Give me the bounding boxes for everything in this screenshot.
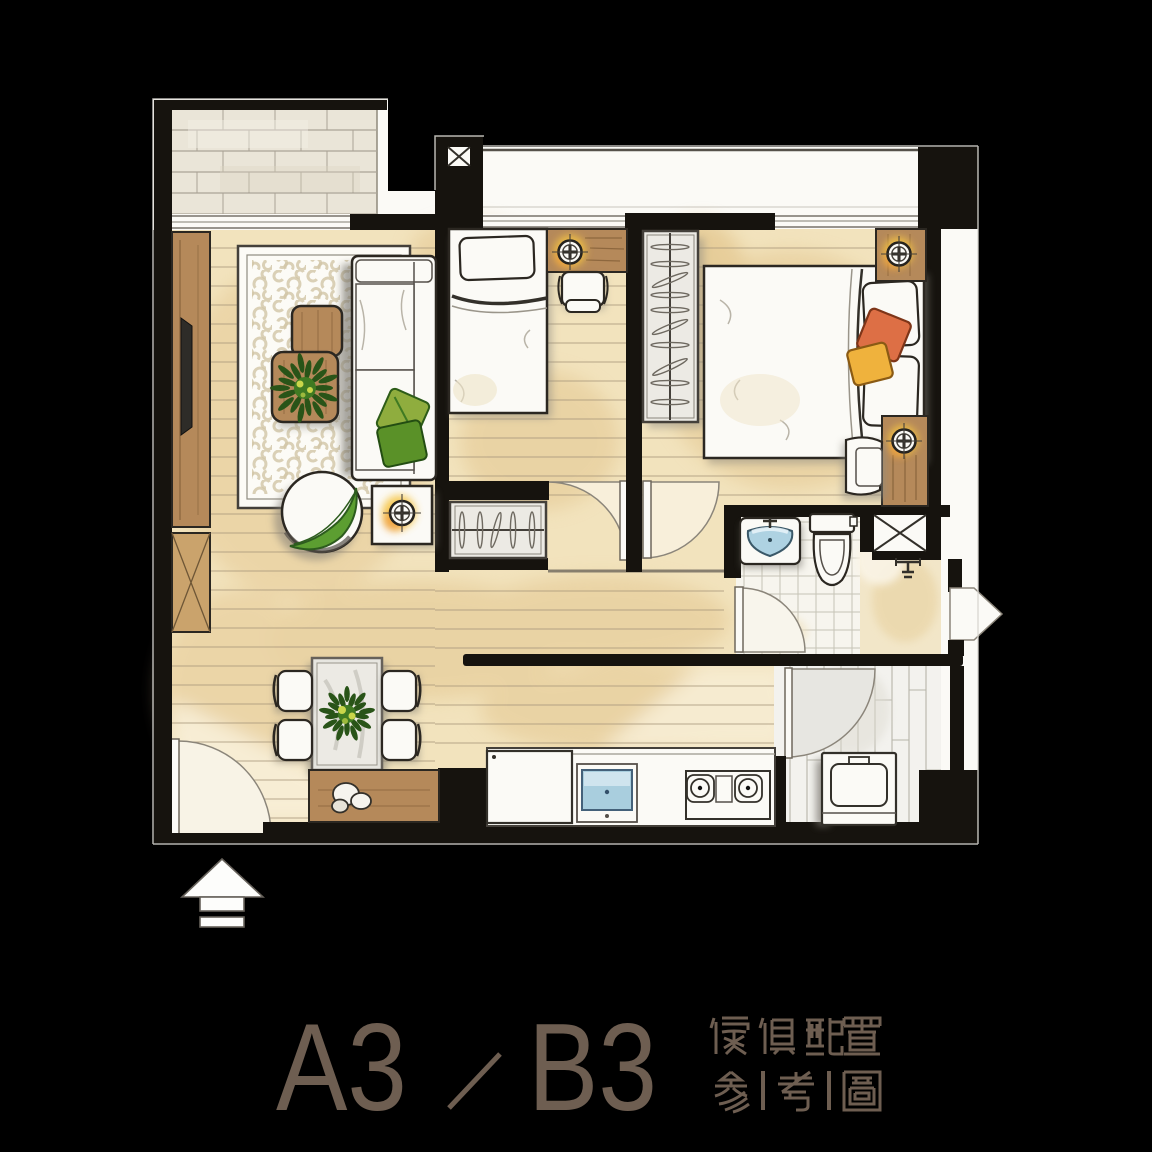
svg-text:B3: B3 — [528, 999, 657, 1137]
svg-text:A3: A3 — [276, 999, 407, 1137]
